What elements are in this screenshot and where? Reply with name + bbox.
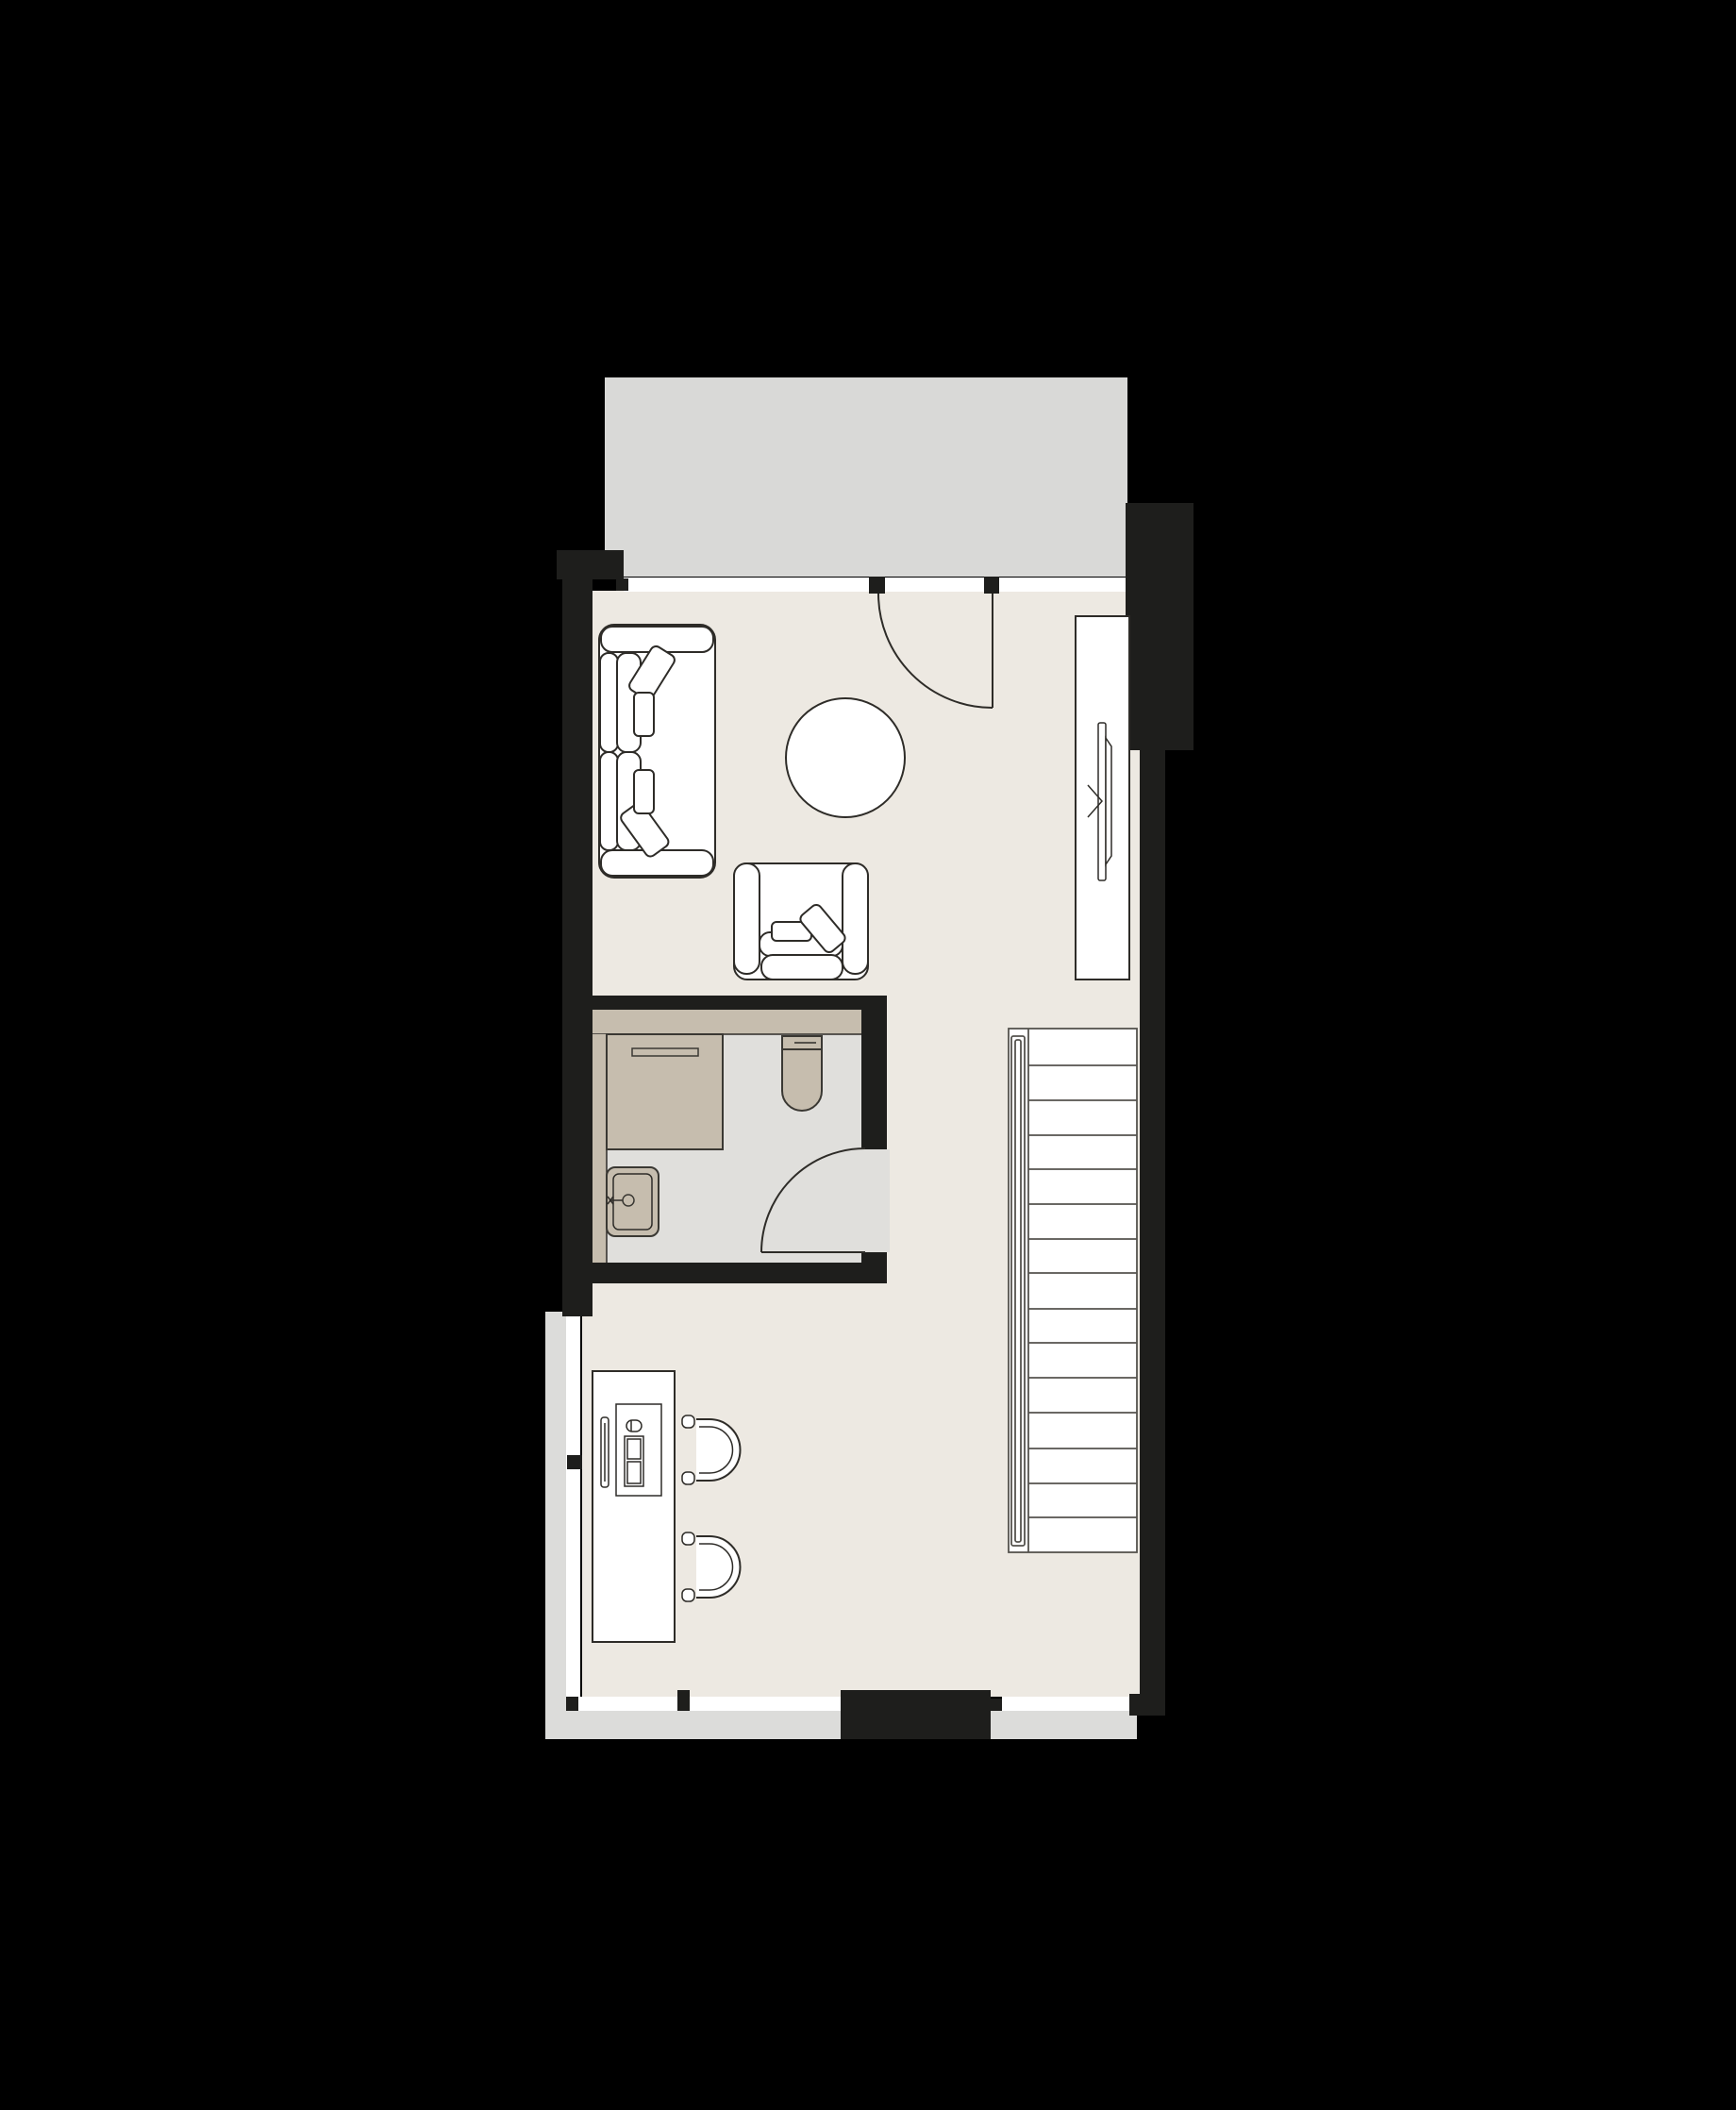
sofa-armrest-bottom bbox=[601, 850, 713, 876]
bathroom-wall-strip bbox=[593, 1034, 607, 1263]
window-left-glass bbox=[566, 1315, 580, 1699]
wall-right-upper bbox=[1126, 503, 1193, 750]
bathroom-counter-band bbox=[593, 1010, 861, 1034]
window-mullion-top-left bbox=[616, 578, 628, 591]
toilet-bowl bbox=[782, 1049, 822, 1111]
bathroom-door-gap-floor bbox=[861, 1149, 890, 1252]
desk-mouse bbox=[626, 1420, 642, 1432]
window-apron-left bbox=[545, 1312, 566, 1739]
tv-panel-back bbox=[1106, 738, 1111, 864]
armchair-back-bar bbox=[761, 955, 843, 980]
floorplan-drawing bbox=[0, 0, 1736, 2110]
entry-door-post-left bbox=[869, 577, 885, 594]
window-bottom-glass-b bbox=[1002, 1697, 1129, 1711]
entry-door-post-right bbox=[984, 577, 999, 594]
sofa-cushion-small-2 bbox=[634, 770, 654, 813]
window-mullion-left-bottom bbox=[566, 1697, 578, 1711]
sofa-cushion-small-1 bbox=[634, 693, 654, 736]
balcony-floor bbox=[605, 377, 1127, 577]
wall-right-lower bbox=[1140, 750, 1165, 1716]
shower-drain bbox=[632, 1048, 698, 1056]
sofa-back-cushion-2 bbox=[600, 752, 618, 850]
desk-chair-2-armtip-top bbox=[682, 1532, 694, 1545]
sink-faucet-knob bbox=[623, 1195, 634, 1206]
armchair-armrest-left bbox=[734, 863, 759, 974]
floorplan-canvas bbox=[0, 0, 1736, 2110]
stairs-railing-inner bbox=[1015, 1040, 1021, 1542]
window-bottom-glass-a bbox=[578, 1697, 841, 1711]
desk-chair-1-armtip-bottom bbox=[682, 1472, 694, 1484]
wall-bottom-block bbox=[841, 1690, 991, 1739]
armchair-armrest-right bbox=[843, 863, 868, 974]
round-table bbox=[786, 698, 905, 817]
window-mullion-bottom-a bbox=[677, 1690, 690, 1711]
window-mullion-bottom-b bbox=[991, 1699, 1002, 1711]
window-mullion-left-mid bbox=[567, 1455, 582, 1469]
wall-corner-top-left bbox=[557, 550, 624, 579]
sofa-back-cushion-1 bbox=[600, 653, 618, 752]
window-mullion-left-top bbox=[566, 1298, 583, 1315]
wall-post-bottom-right bbox=[1129, 1694, 1140, 1716]
desk-chair-2-armtip-bottom bbox=[682, 1589, 694, 1601]
desk-chair-1-armtip-top bbox=[682, 1415, 694, 1428]
